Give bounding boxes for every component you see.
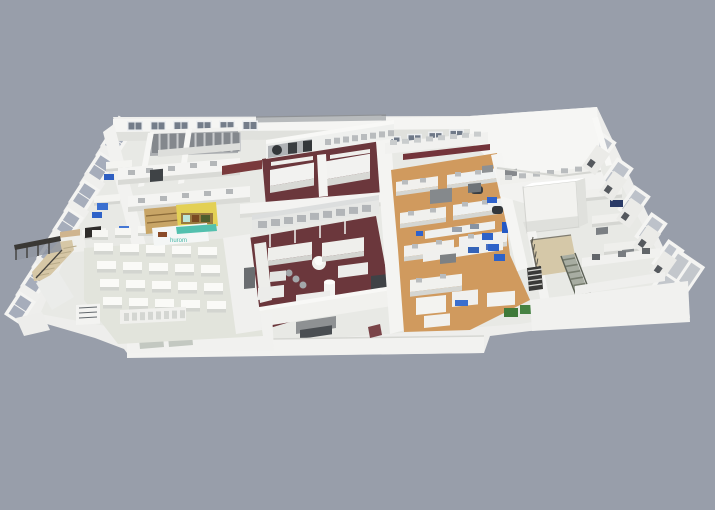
svg-text:hurom: hurom xyxy=(170,238,187,244)
